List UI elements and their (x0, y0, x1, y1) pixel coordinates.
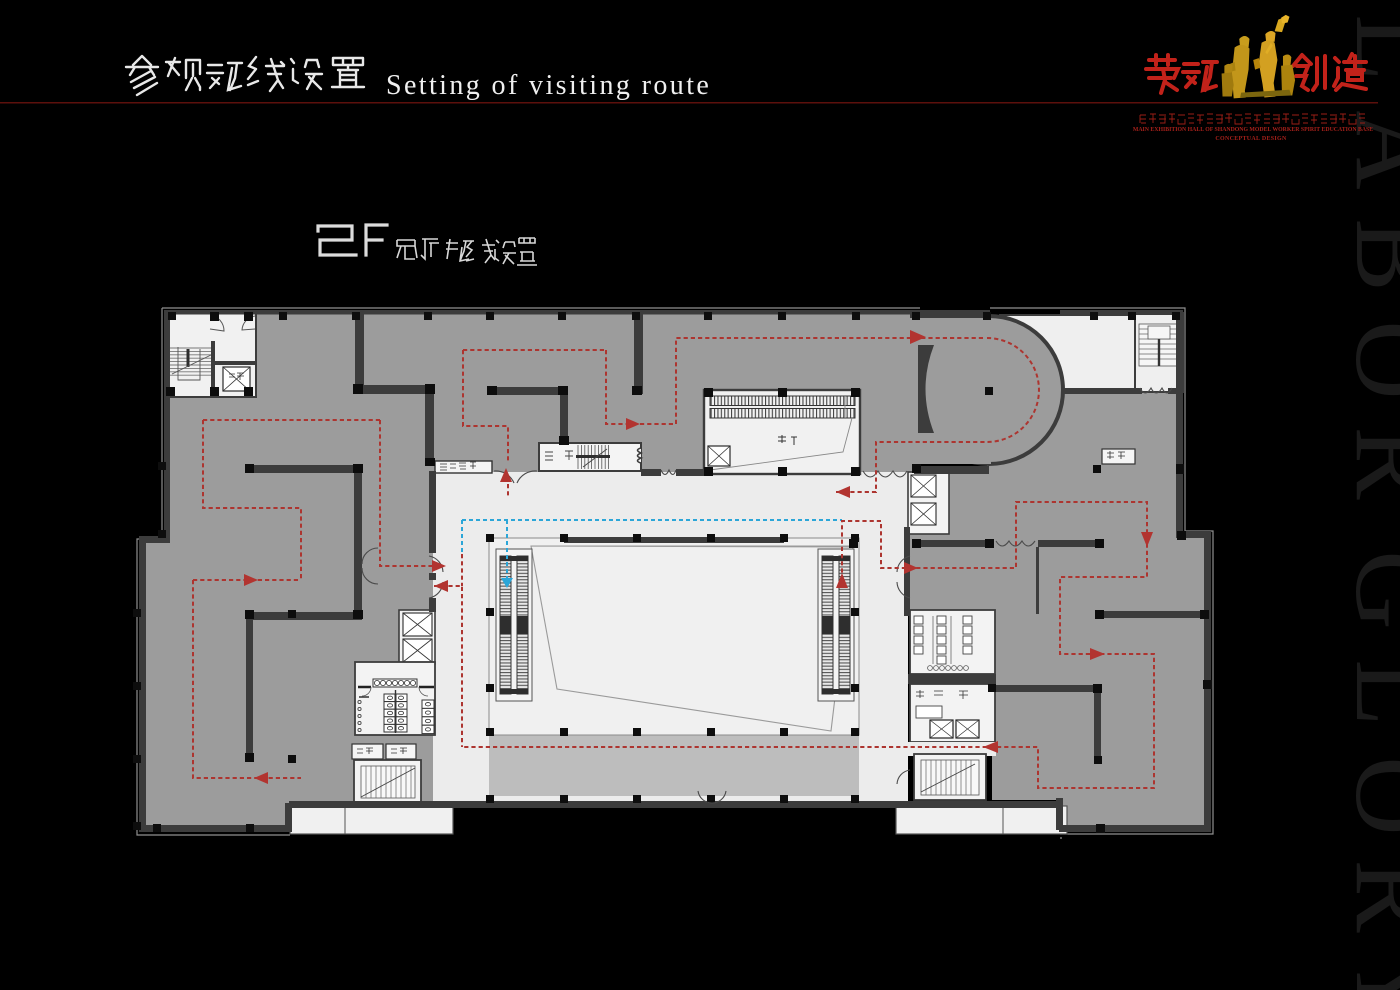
svg-text:O: O (1333, 756, 1400, 835)
svg-text:CONCEPTUAL DESIGN: CONCEPTUAL DESIGN (1215, 136, 1287, 142)
svg-text:R: R (1333, 859, 1400, 933)
svg-text:O: O (1333, 320, 1400, 399)
svg-text:Setting of visiting route: Setting of visiting route (386, 70, 711, 101)
svg-text:R: R (1333, 426, 1400, 500)
svg-text:G: G (1333, 550, 1400, 629)
svg-text:L: L (1333, 14, 1400, 81)
svg-text:Y: Y (1333, 950, 1400, 990)
svg-text:L: L (1333, 659, 1400, 726)
svg-text:B: B (1333, 218, 1400, 291)
svg-text:MAIN EXHIBITION HALL OF SHANDO: MAIN EXHIBITION HALL OF SHANDONG MODEL W… (1133, 127, 1373, 133)
